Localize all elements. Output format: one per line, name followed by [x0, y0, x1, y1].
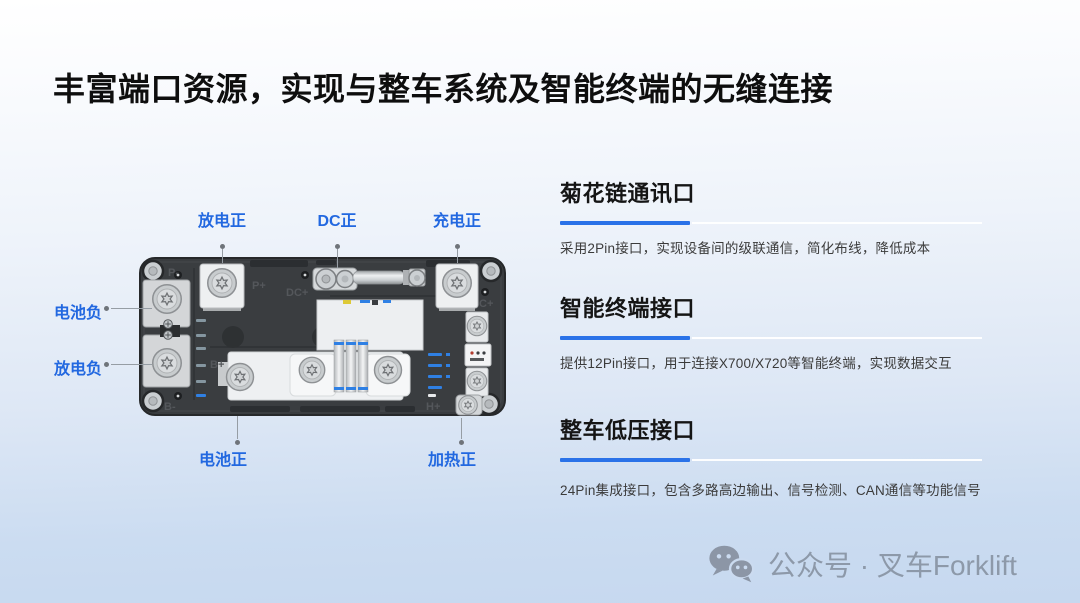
callout-charge-positive: 充电正	[415, 207, 499, 231]
section-body: 采用2Pin接口，实现设备间的级联通信，简化布线，降低成本	[560, 237, 982, 257]
page-title: 丰富端口资源，实现与整车系统及智能终端的无缝连接	[53, 64, 833, 110]
section-body: 提供12Pin接口，用于连接X700/X720等智能终端，实现数据交互	[560, 352, 982, 372]
divider-accent	[560, 221, 690, 225]
leader-line	[461, 418, 462, 439]
callout-battery-negative: 电池负	[28, 299, 102, 323]
callout-dc-positive: DC正	[295, 207, 379, 231]
section-vehicle-lv-port: 整车低压接口 24Pin集成接口，包含多路高边输出、信号检测、CAN通信等功能信…	[560, 413, 982, 499]
footer-account: 公众号 · 叉车Forklift	[706, 543, 1017, 585]
callout-discharge-positive: 放电正	[180, 207, 264, 231]
leader-dot	[104, 306, 109, 311]
leader-line	[237, 416, 238, 439]
divider-line	[692, 222, 982, 224]
upper-module-plate	[317, 300, 423, 350]
engraving-dc-plus: DC+	[286, 287, 308, 299]
engraving-b-plus: B+	[210, 359, 224, 371]
charge-positive-terminal	[436, 264, 478, 311]
leader-line	[337, 249, 338, 268]
section-divider	[560, 336, 982, 340]
busbar	[334, 340, 368, 392]
section-heading: 整车低压接口	[560, 413, 982, 445]
leader-dot	[459, 440, 464, 445]
discharge-positive-terminal	[200, 264, 244, 311]
footer-account-label: 公众号 · 叉车Forklift	[768, 544, 1017, 584]
section-heading: 菊花链通讯口	[560, 176, 982, 208]
callout-discharge-negative: 放电负	[28, 355, 102, 379]
divider-accent	[560, 458, 690, 462]
engraving-h-plus: H+	[426, 401, 440, 413]
slide: 丰富端口资源，实现与整车系统及智能终端的无缝连接	[0, 0, 1080, 603]
callout-battery-positive: 电池正	[181, 446, 265, 470]
section-divider	[560, 221, 982, 225]
engraving-c-plus: C+	[479, 298, 493, 310]
battery-unit-illustration: P- P+ DC+ C+ B+ B- H+	[130, 250, 520, 425]
engraving-p-plus: P+	[252, 280, 266, 292]
leader-dot	[235, 440, 240, 445]
divider-line	[692, 459, 982, 461]
leader-line	[111, 308, 152, 309]
section-divider	[560, 458, 982, 462]
battery-positive-plate	[218, 352, 410, 400]
divider-accent	[560, 336, 690, 340]
leader-line	[111, 364, 152, 365]
leader-dot	[104, 362, 109, 367]
body-hole	[222, 326, 244, 348]
engraving-b-minus: B-	[164, 401, 176, 413]
divider-line	[692, 337, 982, 339]
callout-heating-positive: 加热正	[410, 446, 494, 470]
section-smart-terminal-port: 智能终端接口 提供12Pin接口，用于连接X700/X720等智能终端，实现数据…	[560, 291, 982, 372]
leader-line	[222, 249, 223, 263]
section-heading: 智能终端接口	[560, 291, 982, 323]
wechat-icon	[706, 543, 758, 585]
engraving-p-minus: P-	[168, 267, 179, 279]
section-body: 24Pin集成接口，包含多路高边输出、信号检测、CAN通信等功能信号	[560, 479, 982, 499]
section-daisy-chain-port: 菊花链通讯口 采用2Pin接口，实现设备间的级联通信，简化布线，降低成本	[560, 176, 982, 257]
leader-line	[457, 249, 458, 263]
